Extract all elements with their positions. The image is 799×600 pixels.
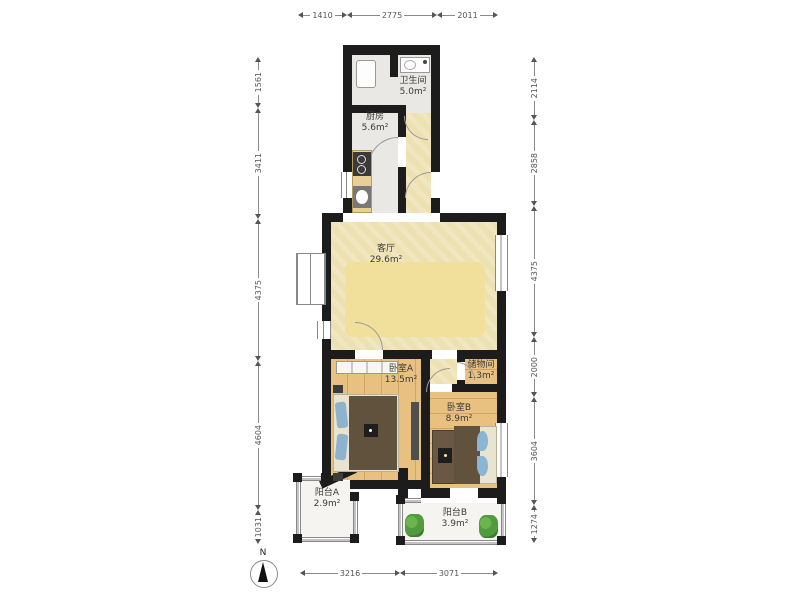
room-area: 29.6m² <box>358 255 414 266</box>
balcony-post <box>350 534 359 543</box>
dim-value: 2114 <box>530 76 539 100</box>
bed-b-pillow <box>477 431 488 451</box>
wall <box>331 350 355 359</box>
room-name: 卧室B <box>431 403 487 414</box>
faucet-dot <box>423 60 427 64</box>
room-area: 5.0m² <box>385 87 441 98</box>
dim-value: 3411 <box>254 151 263 175</box>
dim-left-3: 4375 <box>252 219 264 361</box>
balcony-post <box>497 536 506 545</box>
dim-value: 2000 <box>530 355 539 379</box>
room-area: 13.5m² <box>373 375 429 386</box>
dresser-a <box>411 402 419 460</box>
room-area: 5.6m² <box>347 123 403 134</box>
room-area: 8.9m² <box>431 414 487 425</box>
sink-basin <box>404 60 416 70</box>
dim-value: 2858 <box>530 151 539 175</box>
balcony-post <box>396 536 405 545</box>
wall <box>350 480 421 489</box>
stove-burner <box>357 155 366 164</box>
kitchen-door-gap <box>398 137 406 167</box>
bed-b-blanket <box>454 426 480 484</box>
living-bay-window <box>296 253 326 305</box>
stove-burner <box>357 165 366 174</box>
dim-value: 3604 <box>530 439 539 463</box>
room-name: 阳台A <box>299 488 355 499</box>
dim-right-4: 2000 <box>528 337 540 397</box>
wall <box>383 350 432 359</box>
room-name: 阳台B <box>427 508 483 519</box>
room-name: 客厅 <box>358 244 414 255</box>
dim-left-2: 3411 <box>252 108 264 219</box>
dim-left-4: 4604 <box>252 361 264 510</box>
bathtub <box>356 60 376 88</box>
kitchen-sink-basin <box>356 190 368 204</box>
compass-needle-icon <box>258 562 268 582</box>
bed-a-throw-dot <box>369 429 372 432</box>
nightstand <box>333 473 343 481</box>
room-label-balcony-b: 阳台B 3.9m² <box>427 508 483 530</box>
balcony-a-window-wall <box>296 537 358 542</box>
compass: N <box>246 548 280 592</box>
compass-n-label: N <box>246 548 280 558</box>
dim-value: 3216 <box>338 569 362 578</box>
balcony-post <box>321 473 330 482</box>
room-label-storage: 储物间 1.3m² <box>453 360 509 382</box>
wall <box>390 55 398 77</box>
dim-value: 1031 <box>254 515 263 539</box>
arrow-icon <box>255 539 261 544</box>
room-name: 厨房 <box>347 112 403 123</box>
dim-value: 2011 <box>455 11 479 20</box>
dim-right-3: 4375 <box>528 206 540 337</box>
room-label-bedroom-b: 卧室B 8.9m² <box>431 403 487 425</box>
dim-top-1: 1410 <box>298 10 347 20</box>
dim-right-5: 3604 <box>528 397 540 505</box>
room-area: 1.3m² <box>453 371 509 382</box>
dim-value: 2775 <box>380 11 404 20</box>
dim-bottom-1: 3216 <box>300 568 400 578</box>
living-left-window <box>317 321 331 339</box>
dim-value: 3071 <box>437 569 461 578</box>
dim-value: 4375 <box>530 259 539 283</box>
dim-value: 4375 <box>254 278 263 302</box>
dim-value: 1274 <box>530 512 539 536</box>
wall <box>421 488 450 498</box>
arrow-icon <box>531 538 537 543</box>
wall <box>452 384 506 392</box>
room-name: 卧室A <box>373 364 429 375</box>
room-label-living: 客厅 29.6m² <box>358 244 414 266</box>
room-label-kitchen: 厨房 5.6m² <box>347 112 403 134</box>
dim-top-3: 2011 <box>437 10 498 20</box>
balcony-post <box>497 495 506 504</box>
wall <box>457 350 506 359</box>
arrow-icon <box>493 12 498 18</box>
dim-value: 1410 <box>310 11 334 20</box>
room-area: 2.9m² <box>299 499 355 510</box>
plant <box>405 514 424 537</box>
balcony-b-window-wall <box>398 540 506 545</box>
dim-right-6: 1274 <box>528 505 540 543</box>
room-label-bathroom: 卫生间 5.0m² <box>385 76 441 98</box>
arrow-icon <box>493 570 498 576</box>
bed-b-pillow <box>477 456 488 476</box>
dim-value: 1561 <box>254 70 263 94</box>
nightstand <box>333 385 343 393</box>
room-name: 卫生间 <box>385 76 441 87</box>
tv-b-dot <box>444 454 447 457</box>
dim-bottom-2: 3071 <box>400 568 498 578</box>
dim-top-2: 2775 <box>347 10 437 20</box>
floor-plan: 卫生间 5.0m² 厨房 5.6m² 客厅 29.6m² 卧室A 13.5m² … <box>0 0 799 600</box>
room-label-bedroom-a: 卧室A 13.5m² <box>373 364 429 386</box>
dim-right-2: 2858 <box>528 120 540 206</box>
balcony-post <box>293 534 302 543</box>
room-label-balcony-a: 阳台A 2.9m² <box>299 488 355 510</box>
balcony-post <box>396 495 405 504</box>
balcony-post <box>293 473 302 482</box>
dim-value: 4604 <box>254 423 263 447</box>
dim-left-5: 1031 <box>252 510 264 543</box>
wall <box>398 468 408 498</box>
dim-left-1: 1561 <box>252 57 264 108</box>
living-right-window <box>495 235 508 291</box>
wall <box>343 45 440 55</box>
room-name: 储物间 <box>453 360 509 371</box>
entry-door-gap <box>431 172 440 198</box>
dim-right-1: 2114 <box>528 57 540 120</box>
room-area: 3.9m² <box>427 519 483 530</box>
